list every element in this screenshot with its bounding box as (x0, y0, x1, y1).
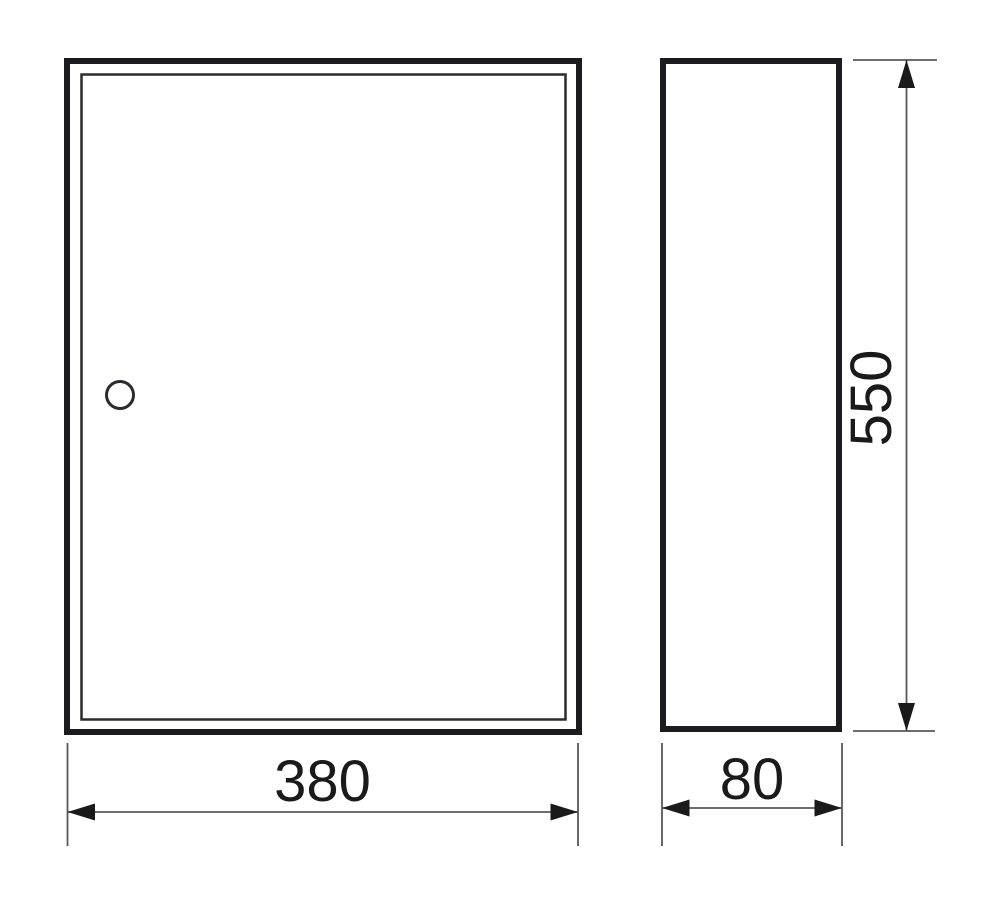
arrowhead-up-icon (898, 60, 915, 88)
side-view-outline (663, 61, 839, 729)
side-view (663, 61, 839, 729)
keyhole-icon (107, 382, 134, 409)
height-dimension-label: 550 (839, 350, 904, 447)
depth-dimension: 80 (662, 743, 842, 846)
arrowhead-right-icon (815, 800, 843, 817)
depth-dimension-label: 80 (720, 747, 785, 812)
height-dimension: 550 (839, 60, 937, 731)
front-view-outline (67, 61, 579, 732)
arrowhead-left-icon (68, 804, 96, 821)
width-dimension: 380 (68, 743, 579, 846)
front-door-outline (82, 75, 566, 720)
technical-drawing: 380 80 550 (0, 0, 1000, 899)
arrowhead-left-icon (662, 800, 690, 817)
arrowhead-right-icon (551, 804, 579, 821)
arrowhead-down-icon (898, 703, 915, 731)
front-view (67, 61, 579, 732)
drawing-canvas: 380 80 550 (0, 0, 1000, 899)
width-dimension-label: 380 (274, 749, 371, 814)
